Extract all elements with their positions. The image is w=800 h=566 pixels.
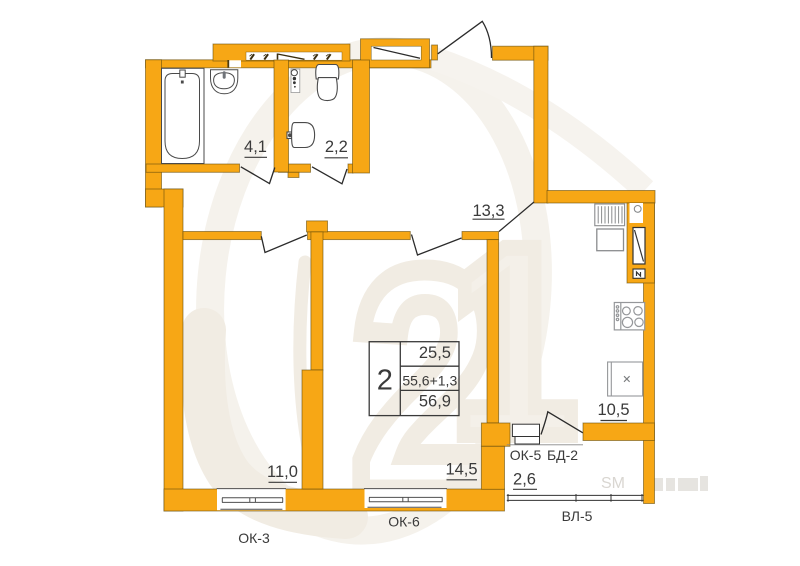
svg-text:55,6+1,3: 55,6+1,3 (402, 373, 457, 389)
svg-text:2,6: 2,6 (513, 471, 536, 489)
svg-text:13,3: 13,3 (472, 202, 504, 220)
svg-text:14,5: 14,5 (445, 461, 477, 479)
svg-text:ОК-3: ОК-3 (238, 530, 270, 546)
svg-text:БД-2: БД-2 (547, 447, 578, 463)
svg-text:11,0: 11,0 (267, 463, 298, 481)
svg-text:ОК-6: ОК-6 (388, 514, 420, 530)
svg-text:56,9: 56,9 (419, 393, 451, 411)
svg-text:4,1: 4,1 (244, 138, 267, 156)
svg-text:25,5: 25,5 (419, 344, 451, 362)
svg-text:ОК-5: ОК-5 (510, 447, 542, 463)
svg-text:SM: SM (601, 475, 625, 492)
svg-text:2,2: 2,2 (325, 138, 348, 156)
svg-text:2: 2 (377, 365, 393, 397)
svg-text:10,5: 10,5 (597, 401, 629, 419)
svg-text:ВЛ-5: ВЛ-5 (562, 508, 593, 524)
